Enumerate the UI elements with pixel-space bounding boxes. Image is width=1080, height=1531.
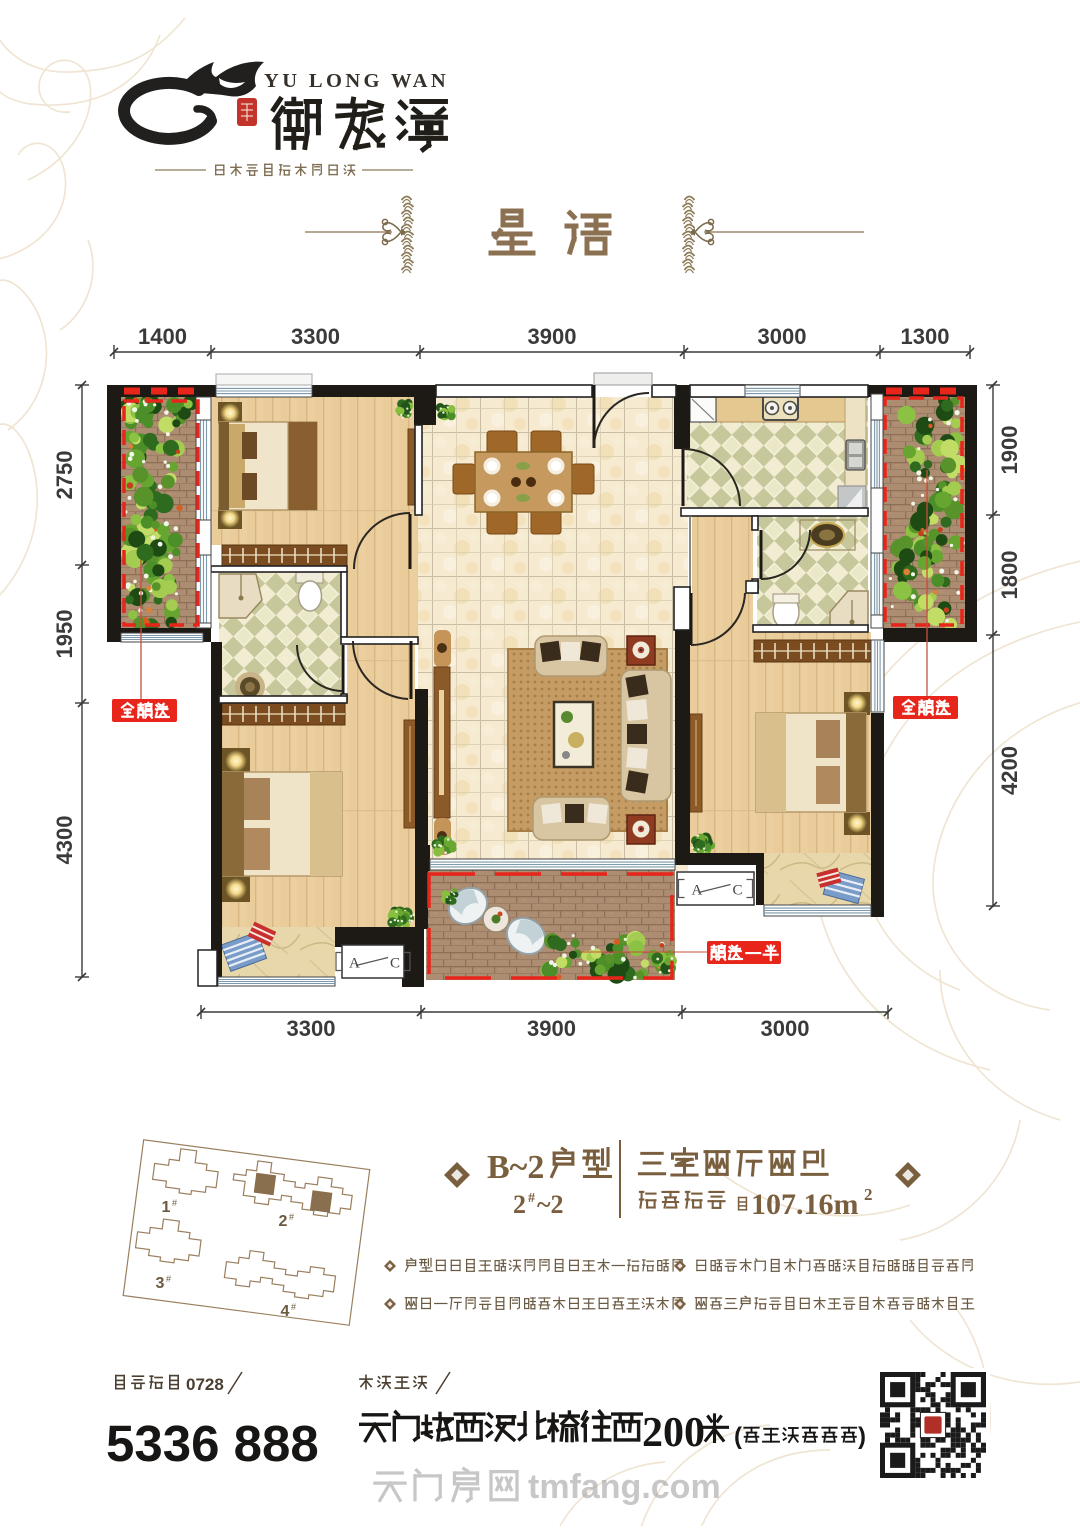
svg-text:#: # bbox=[172, 1198, 177, 1208]
svg-text:4300: 4300 bbox=[52, 816, 77, 865]
svg-text:#: # bbox=[291, 1302, 296, 1312]
svg-text:3000: 3000 bbox=[758, 324, 807, 349]
svg-text:(: ( bbox=[734, 1423, 742, 1450]
svg-text:200: 200 bbox=[642, 1410, 705, 1456]
svg-text:3900: 3900 bbox=[527, 1016, 576, 1041]
svg-text:4200: 4200 bbox=[997, 746, 1022, 795]
svg-text:1900: 1900 bbox=[997, 426, 1022, 475]
svg-text:C: C bbox=[390, 956, 400, 972]
svg-text:1300: 1300 bbox=[901, 324, 950, 349]
svg-text:3000: 3000 bbox=[761, 1016, 810, 1041]
svg-text:3: 3 bbox=[156, 1275, 165, 1292]
svg-text:YU LONG WAN: YU LONG WAN bbox=[264, 70, 449, 92]
svg-text:2: 2 bbox=[864, 1185, 873, 1204]
svg-text:4: 4 bbox=[281, 1303, 290, 1320]
svg-text:#: # bbox=[289, 1212, 294, 1222]
svg-text:#: # bbox=[528, 1191, 535, 1206]
svg-text:A: A bbox=[349, 956, 360, 972]
svg-text:3300: 3300 bbox=[291, 324, 340, 349]
svg-text:2: 2 bbox=[513, 1190, 526, 1219]
svg-text:~2: ~2 bbox=[537, 1190, 564, 1219]
svg-text:#: # bbox=[166, 1274, 171, 1284]
svg-text:0728: 0728 bbox=[186, 1375, 224, 1394]
svg-text:tmfang.com: tmfang.com bbox=[528, 1468, 721, 1506]
svg-text:B~2: B~2 bbox=[487, 1149, 544, 1186]
svg-text:5336 888: 5336 888 bbox=[106, 1415, 319, 1472]
svg-text:107.16m: 107.16m bbox=[751, 1188, 859, 1221]
svg-text:3900: 3900 bbox=[528, 324, 577, 349]
svg-text:1800: 1800 bbox=[997, 551, 1022, 600]
svg-text:1: 1 bbox=[162, 1199, 171, 1216]
svg-text:1400: 1400 bbox=[138, 324, 187, 349]
svg-text:): ) bbox=[858, 1423, 866, 1450]
svg-text:C: C bbox=[733, 883, 743, 899]
svg-text:3300: 3300 bbox=[287, 1016, 336, 1041]
svg-text:A: A bbox=[692, 883, 703, 899]
svg-text:2750: 2750 bbox=[52, 451, 77, 500]
svg-text:2: 2 bbox=[279, 1213, 288, 1230]
svg-text:1950: 1950 bbox=[52, 610, 77, 659]
